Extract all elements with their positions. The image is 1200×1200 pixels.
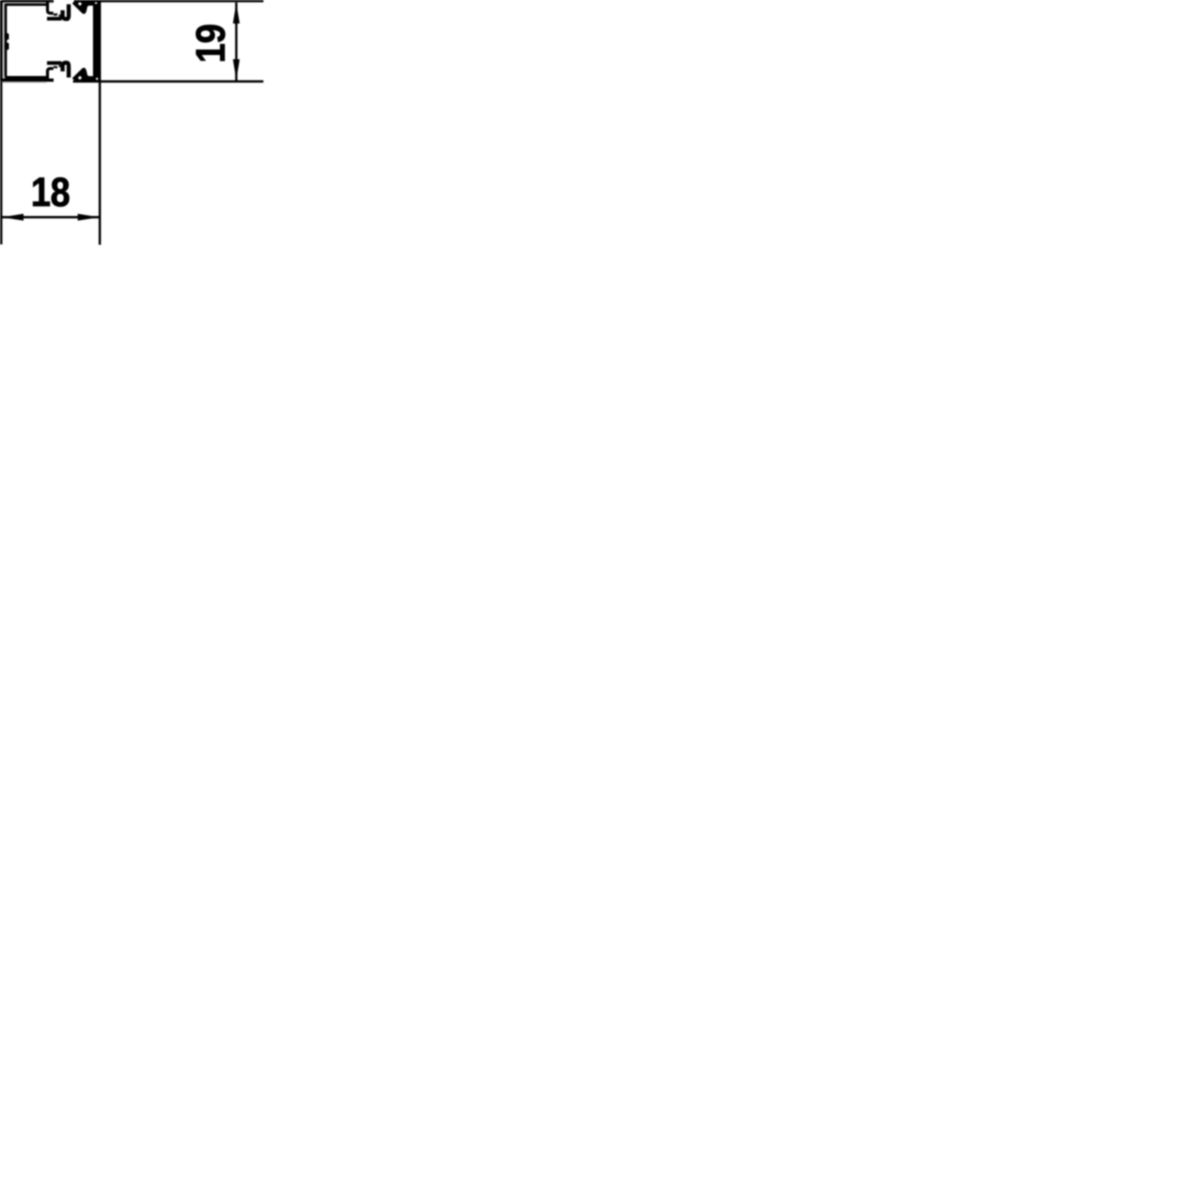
svg-text:19: 19 [189, 24, 235, 63]
svg-text:18: 18 [31, 170, 70, 216]
